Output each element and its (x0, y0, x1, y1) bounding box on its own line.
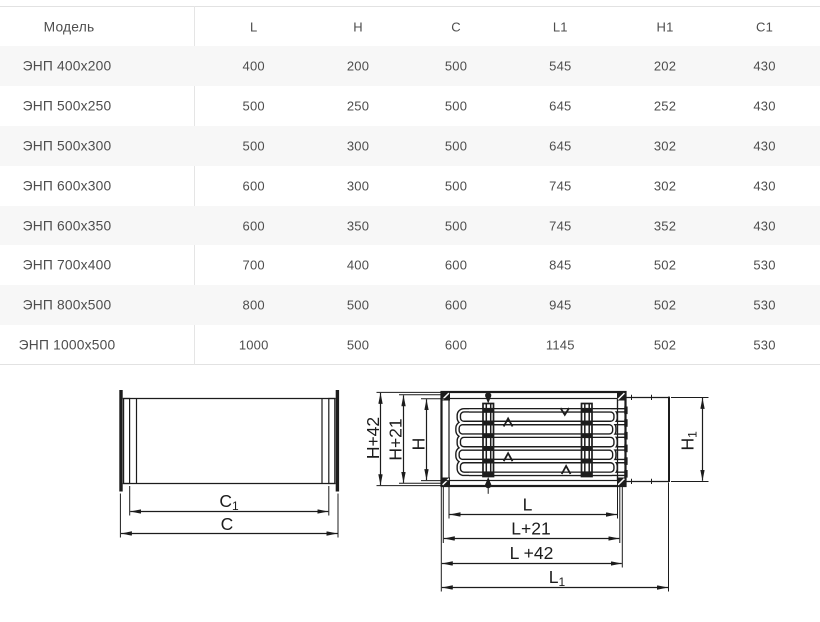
svg-text:H+21: H+21 (386, 418, 406, 460)
svg-text:L1: L1 (549, 567, 566, 589)
svg-text:L: L (523, 495, 533, 515)
svg-text:L+21: L+21 (511, 519, 550, 539)
svg-text:H+42: H+42 (363, 417, 383, 459)
svg-text:H1: H1 (677, 431, 699, 451)
svg-text:C1: C1 (219, 491, 239, 513)
svg-text:L +42: L +42 (510, 543, 554, 563)
svg-text:C: C (221, 514, 234, 534)
svg-text:H: H (408, 438, 428, 451)
